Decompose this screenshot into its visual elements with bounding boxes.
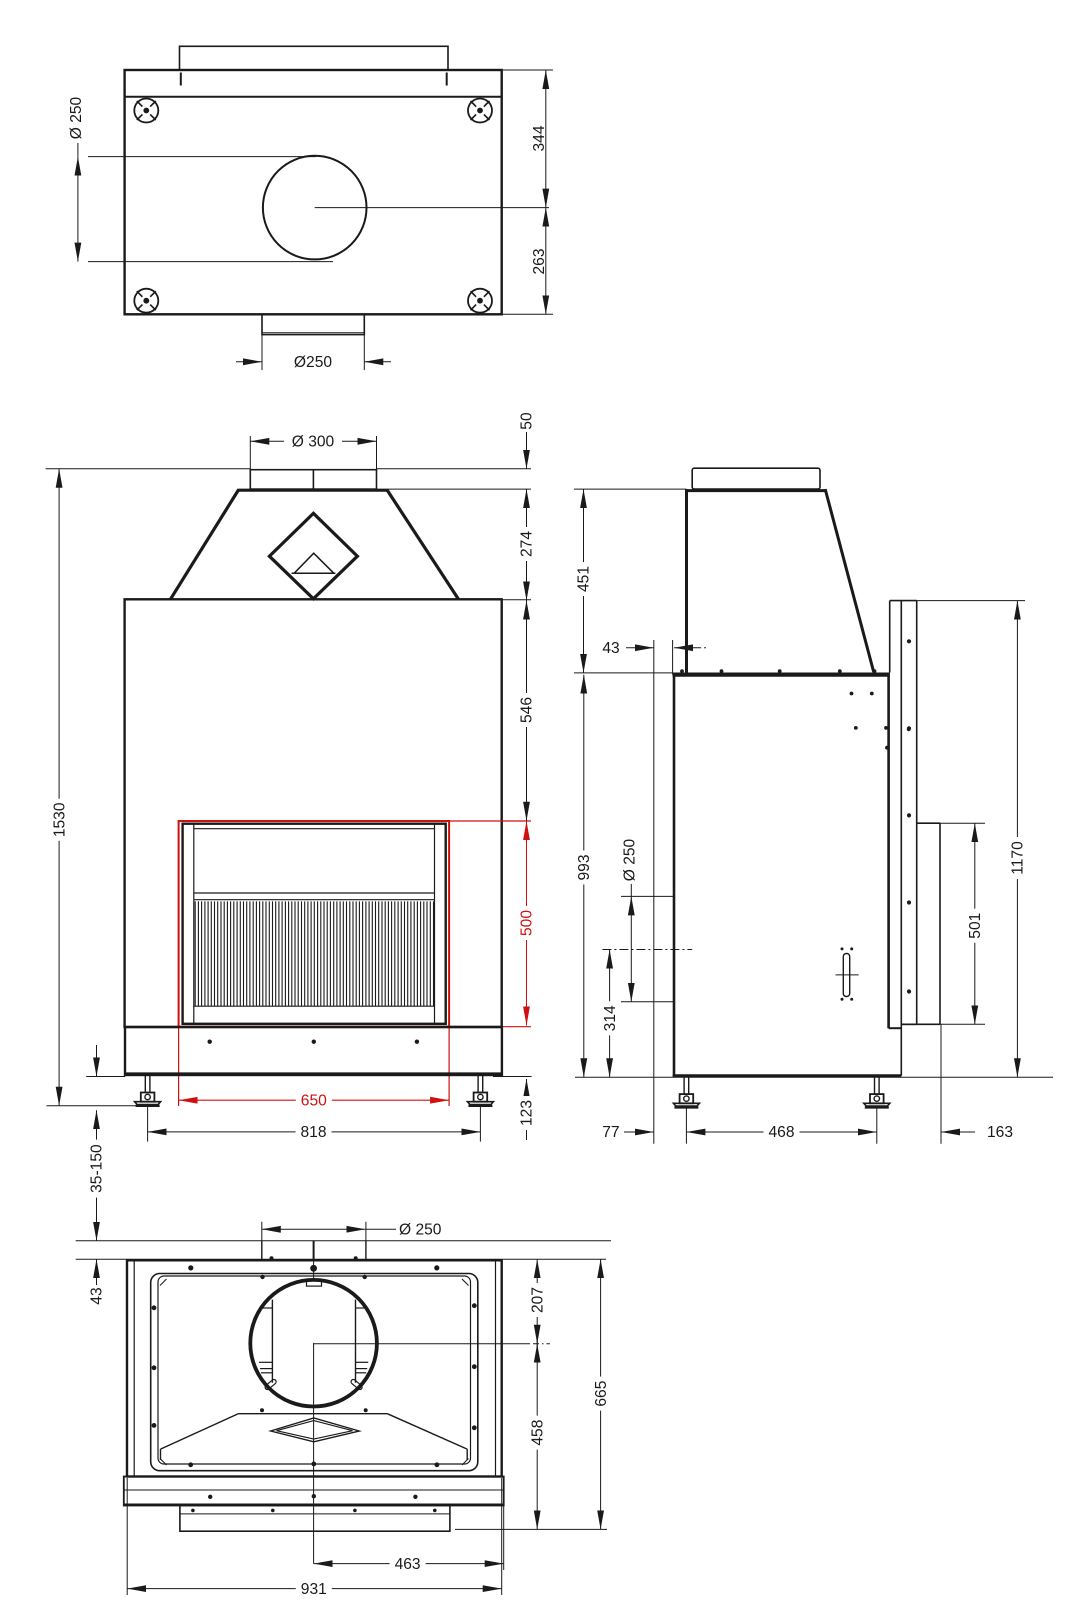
svg-text:35-150: 35-150 — [89, 1144, 106, 1193]
svg-text:123: 123 — [519, 1100, 536, 1126]
svg-text:451: 451 — [576, 566, 593, 592]
svg-text:314: 314 — [602, 1005, 619, 1031]
svg-text:263: 263 — [531, 248, 548, 274]
svg-text:163: 163 — [987, 1124, 1013, 1141]
svg-text:344: 344 — [531, 125, 548, 151]
svg-text:43: 43 — [89, 1287, 106, 1304]
svg-text:500: 500 — [519, 910, 536, 936]
svg-text:458: 458 — [529, 1420, 546, 1446]
svg-text:501: 501 — [967, 913, 984, 939]
svg-text:77: 77 — [602, 1124, 619, 1141]
svg-text:463: 463 — [395, 1556, 421, 1573]
svg-text:Ø 250: Ø 250 — [622, 838, 639, 881]
svg-text:665: 665 — [593, 1380, 610, 1406]
svg-text:274: 274 — [519, 531, 536, 557]
svg-text:1170: 1170 — [1010, 841, 1027, 875]
svg-text:818: 818 — [300, 1124, 326, 1141]
svg-text:993: 993 — [576, 854, 593, 880]
svg-text:Ø 250: Ø 250 — [399, 1222, 442, 1239]
svg-text:Ø 250: Ø 250 — [68, 96, 85, 139]
svg-text:468: 468 — [768, 1124, 794, 1141]
svg-text:650: 650 — [301, 1092, 327, 1109]
svg-text:546: 546 — [519, 697, 536, 723]
svg-text:931: 931 — [301, 1581, 327, 1598]
svg-text:50: 50 — [519, 412, 536, 430]
svg-text:43: 43 — [602, 640, 619, 657]
svg-text:207: 207 — [529, 1287, 546, 1313]
svg-text:Ø 300: Ø 300 — [292, 434, 335, 451]
svg-text:Ø250: Ø250 — [294, 354, 332, 371]
svg-text:1530: 1530 — [51, 802, 68, 837]
